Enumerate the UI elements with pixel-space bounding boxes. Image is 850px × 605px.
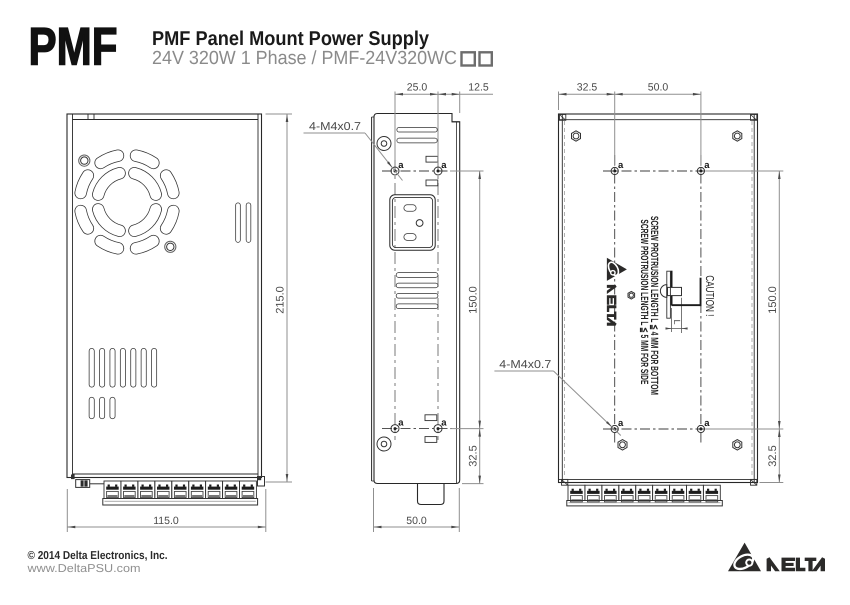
svg-text:a: a (441, 160, 447, 171)
svg-text:4-M4x0.7: 4-M4x0.7 (499, 359, 551, 371)
svg-text:50.0: 50.0 (648, 82, 669, 94)
svg-text:32.5: 32.5 (467, 445, 479, 466)
svg-text:PMF: PMF (29, 18, 118, 77)
svg-text:L: L (672, 320, 682, 325)
svg-text:50.0: 50.0 (406, 515, 427, 527)
svg-text:a: a (618, 418, 624, 429)
svg-text:150.0: 150.0 (467, 286, 479, 314)
svg-text:PMF Panel Mount Power Supply: PMF Panel Mount Power Supply (152, 28, 430, 50)
svg-text:a: a (704, 418, 710, 429)
svg-text:www.DeltaPSU.com: www.DeltaPSU.com (26, 563, 140, 575)
svg-text:115.0: 115.0 (153, 515, 179, 527)
svg-text:CAUTION !: CAUTION ! (703, 275, 715, 316)
svg-text:© 2014 Delta Electronics, Inc.: © 2014 Delta Electronics, Inc. (28, 550, 168, 562)
svg-text:a: a (618, 160, 624, 171)
svg-text:25.0: 25.0 (407, 82, 428, 94)
svg-text:32.5: 32.5 (767, 445, 779, 466)
svg-text:a: a (441, 418, 447, 429)
svg-text:SCREW PROTRUSION LENGTH L ≦ 5: SCREW PROTRUSION LENGTH L ≦ 5 MM FOR SID… (638, 219, 650, 384)
svg-text:32.5: 32.5 (577, 82, 598, 94)
svg-text:12.5: 12.5 (468, 82, 489, 94)
svg-text:a: a (398, 418, 404, 429)
svg-text:a: a (398, 160, 404, 171)
svg-text:4-M4x0.7: 4-M4x0.7 (309, 121, 361, 133)
svg-text:24V 320W 1 Phase / PMF-24V320W: 24V 320W 1 Phase / PMF-24V320WC (152, 48, 457, 69)
svg-text:215.0: 215.0 (274, 286, 286, 314)
svg-text:a: a (704, 160, 710, 171)
svg-text:150.0: 150.0 (767, 286, 779, 314)
